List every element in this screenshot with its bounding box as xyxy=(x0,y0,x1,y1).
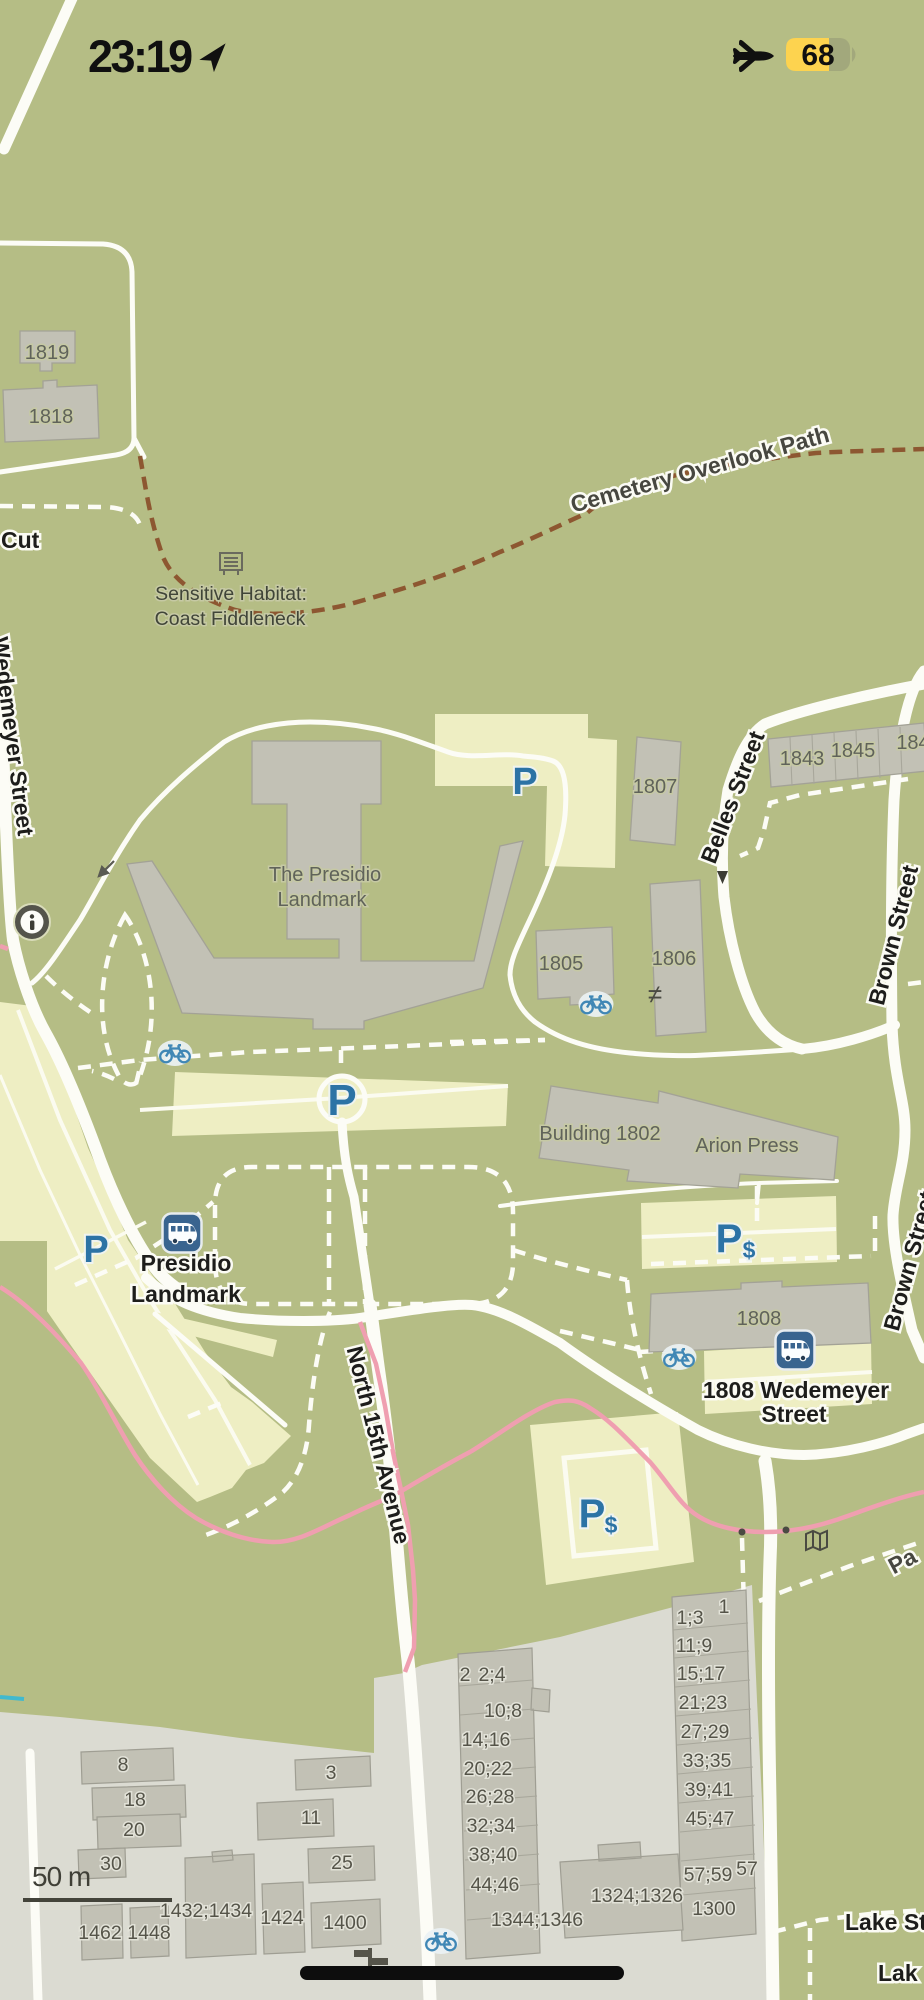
svg-text:15;17: 15;17 xyxy=(677,1663,726,1685)
svg-text:1819: 1819 xyxy=(25,342,70,364)
svg-text:Building 1802: Building 1802 xyxy=(539,1123,660,1145)
svg-text:11;9: 11;9 xyxy=(676,1635,713,1657)
svg-text:33;35: 33;35 xyxy=(683,1750,732,1772)
svg-text:1300: 1300 xyxy=(692,1898,736,1920)
svg-text:14;16: 14;16 xyxy=(462,1729,511,1751)
svg-text:1808: 1808 xyxy=(737,1308,782,1330)
svg-text:2;4: 2;4 xyxy=(478,1664,505,1686)
svg-text:Lake Stre: Lake Stre xyxy=(845,1909,924,1935)
svg-text:2: 2 xyxy=(460,1664,471,1686)
svg-text:P: P xyxy=(579,1492,606,1536)
svg-text:1807: 1807 xyxy=(633,776,678,798)
svg-text:1805: 1805 xyxy=(539,953,584,975)
svg-text:1843: 1843 xyxy=(780,748,825,770)
svg-text:Coast Fiddleneck: Coast Fiddleneck xyxy=(155,608,306,630)
svg-text:1432;1434: 1432;1434 xyxy=(160,1900,252,1922)
svg-text:23:19: 23:19 xyxy=(88,31,192,82)
svg-text:21;23: 21;23 xyxy=(679,1692,728,1714)
svg-text:39;41: 39;41 xyxy=(685,1779,734,1801)
svg-text:Presidio: Presidio xyxy=(141,1250,232,1276)
svg-text:Lak: Lak xyxy=(878,1960,918,1986)
svg-text:44;46: 44;46 xyxy=(471,1874,520,1896)
svg-text:$: $ xyxy=(743,1237,756,1263)
svg-text:Sensitive Habitat:: Sensitive Habitat: xyxy=(155,583,307,605)
svg-text:184: 184 xyxy=(896,732,924,754)
svg-text:1806: 1806 xyxy=(652,948,697,970)
svg-text:The Presidio: The Presidio xyxy=(269,864,381,886)
svg-text:≠: ≠ xyxy=(648,979,662,1009)
svg-text:1400: 1400 xyxy=(323,1912,367,1934)
svg-text:Street: Street xyxy=(761,1401,827,1427)
svg-text:26;28: 26;28 xyxy=(466,1786,515,1808)
svg-text:P: P xyxy=(327,1076,356,1125)
svg-text:Arion Press: Arion Press xyxy=(695,1135,798,1157)
svg-text:1424: 1424 xyxy=(260,1907,304,1929)
svg-text:32;34: 32;34 xyxy=(467,1815,516,1837)
svg-text:1808 Wedemeyer: 1808 Wedemeyer xyxy=(703,1377,889,1403)
svg-text:P: P xyxy=(83,1229,108,1271)
svg-text:11: 11 xyxy=(301,1807,321,1829)
svg-text:10;8: 10;8 xyxy=(484,1700,522,1722)
svg-text:1324;1326: 1324;1326 xyxy=(591,1885,683,1907)
svg-text:1448: 1448 xyxy=(127,1922,170,1944)
svg-text:20: 20 xyxy=(123,1819,145,1841)
svg-text:1344;1346: 1344;1346 xyxy=(491,1909,583,1931)
svg-text:45;47: 45;47 xyxy=(686,1808,735,1830)
svg-text:1: 1 xyxy=(719,1596,730,1618)
svg-text:1845: 1845 xyxy=(831,740,876,762)
svg-text:Cut: Cut xyxy=(1,527,40,553)
svg-text:68: 68 xyxy=(801,39,834,72)
svg-text:3: 3 xyxy=(326,1762,337,1784)
svg-text:18: 18 xyxy=(124,1789,146,1811)
svg-text:P: P xyxy=(716,1217,743,1261)
svg-text:50 m: 50 m xyxy=(32,1861,90,1892)
svg-text:$: $ xyxy=(605,1512,618,1538)
svg-text:1;3: 1;3 xyxy=(676,1607,703,1629)
svg-text:Landmark: Landmark xyxy=(278,889,368,911)
svg-text:1462: 1462 xyxy=(78,1922,121,1944)
svg-text:1818: 1818 xyxy=(29,406,74,428)
svg-text:Landmark: Landmark xyxy=(131,1281,241,1307)
svg-text:57: 57 xyxy=(736,1858,758,1880)
svg-text:25: 25 xyxy=(331,1852,353,1874)
svg-text:38;40: 38;40 xyxy=(469,1844,518,1866)
svg-text:57;59: 57;59 xyxy=(684,1864,733,1886)
svg-text:P: P xyxy=(512,761,537,803)
svg-text:27;29: 27;29 xyxy=(681,1721,730,1743)
svg-text:8: 8 xyxy=(118,1754,129,1776)
svg-text:30: 30 xyxy=(100,1853,122,1875)
svg-text:20;22: 20;22 xyxy=(464,1758,513,1780)
